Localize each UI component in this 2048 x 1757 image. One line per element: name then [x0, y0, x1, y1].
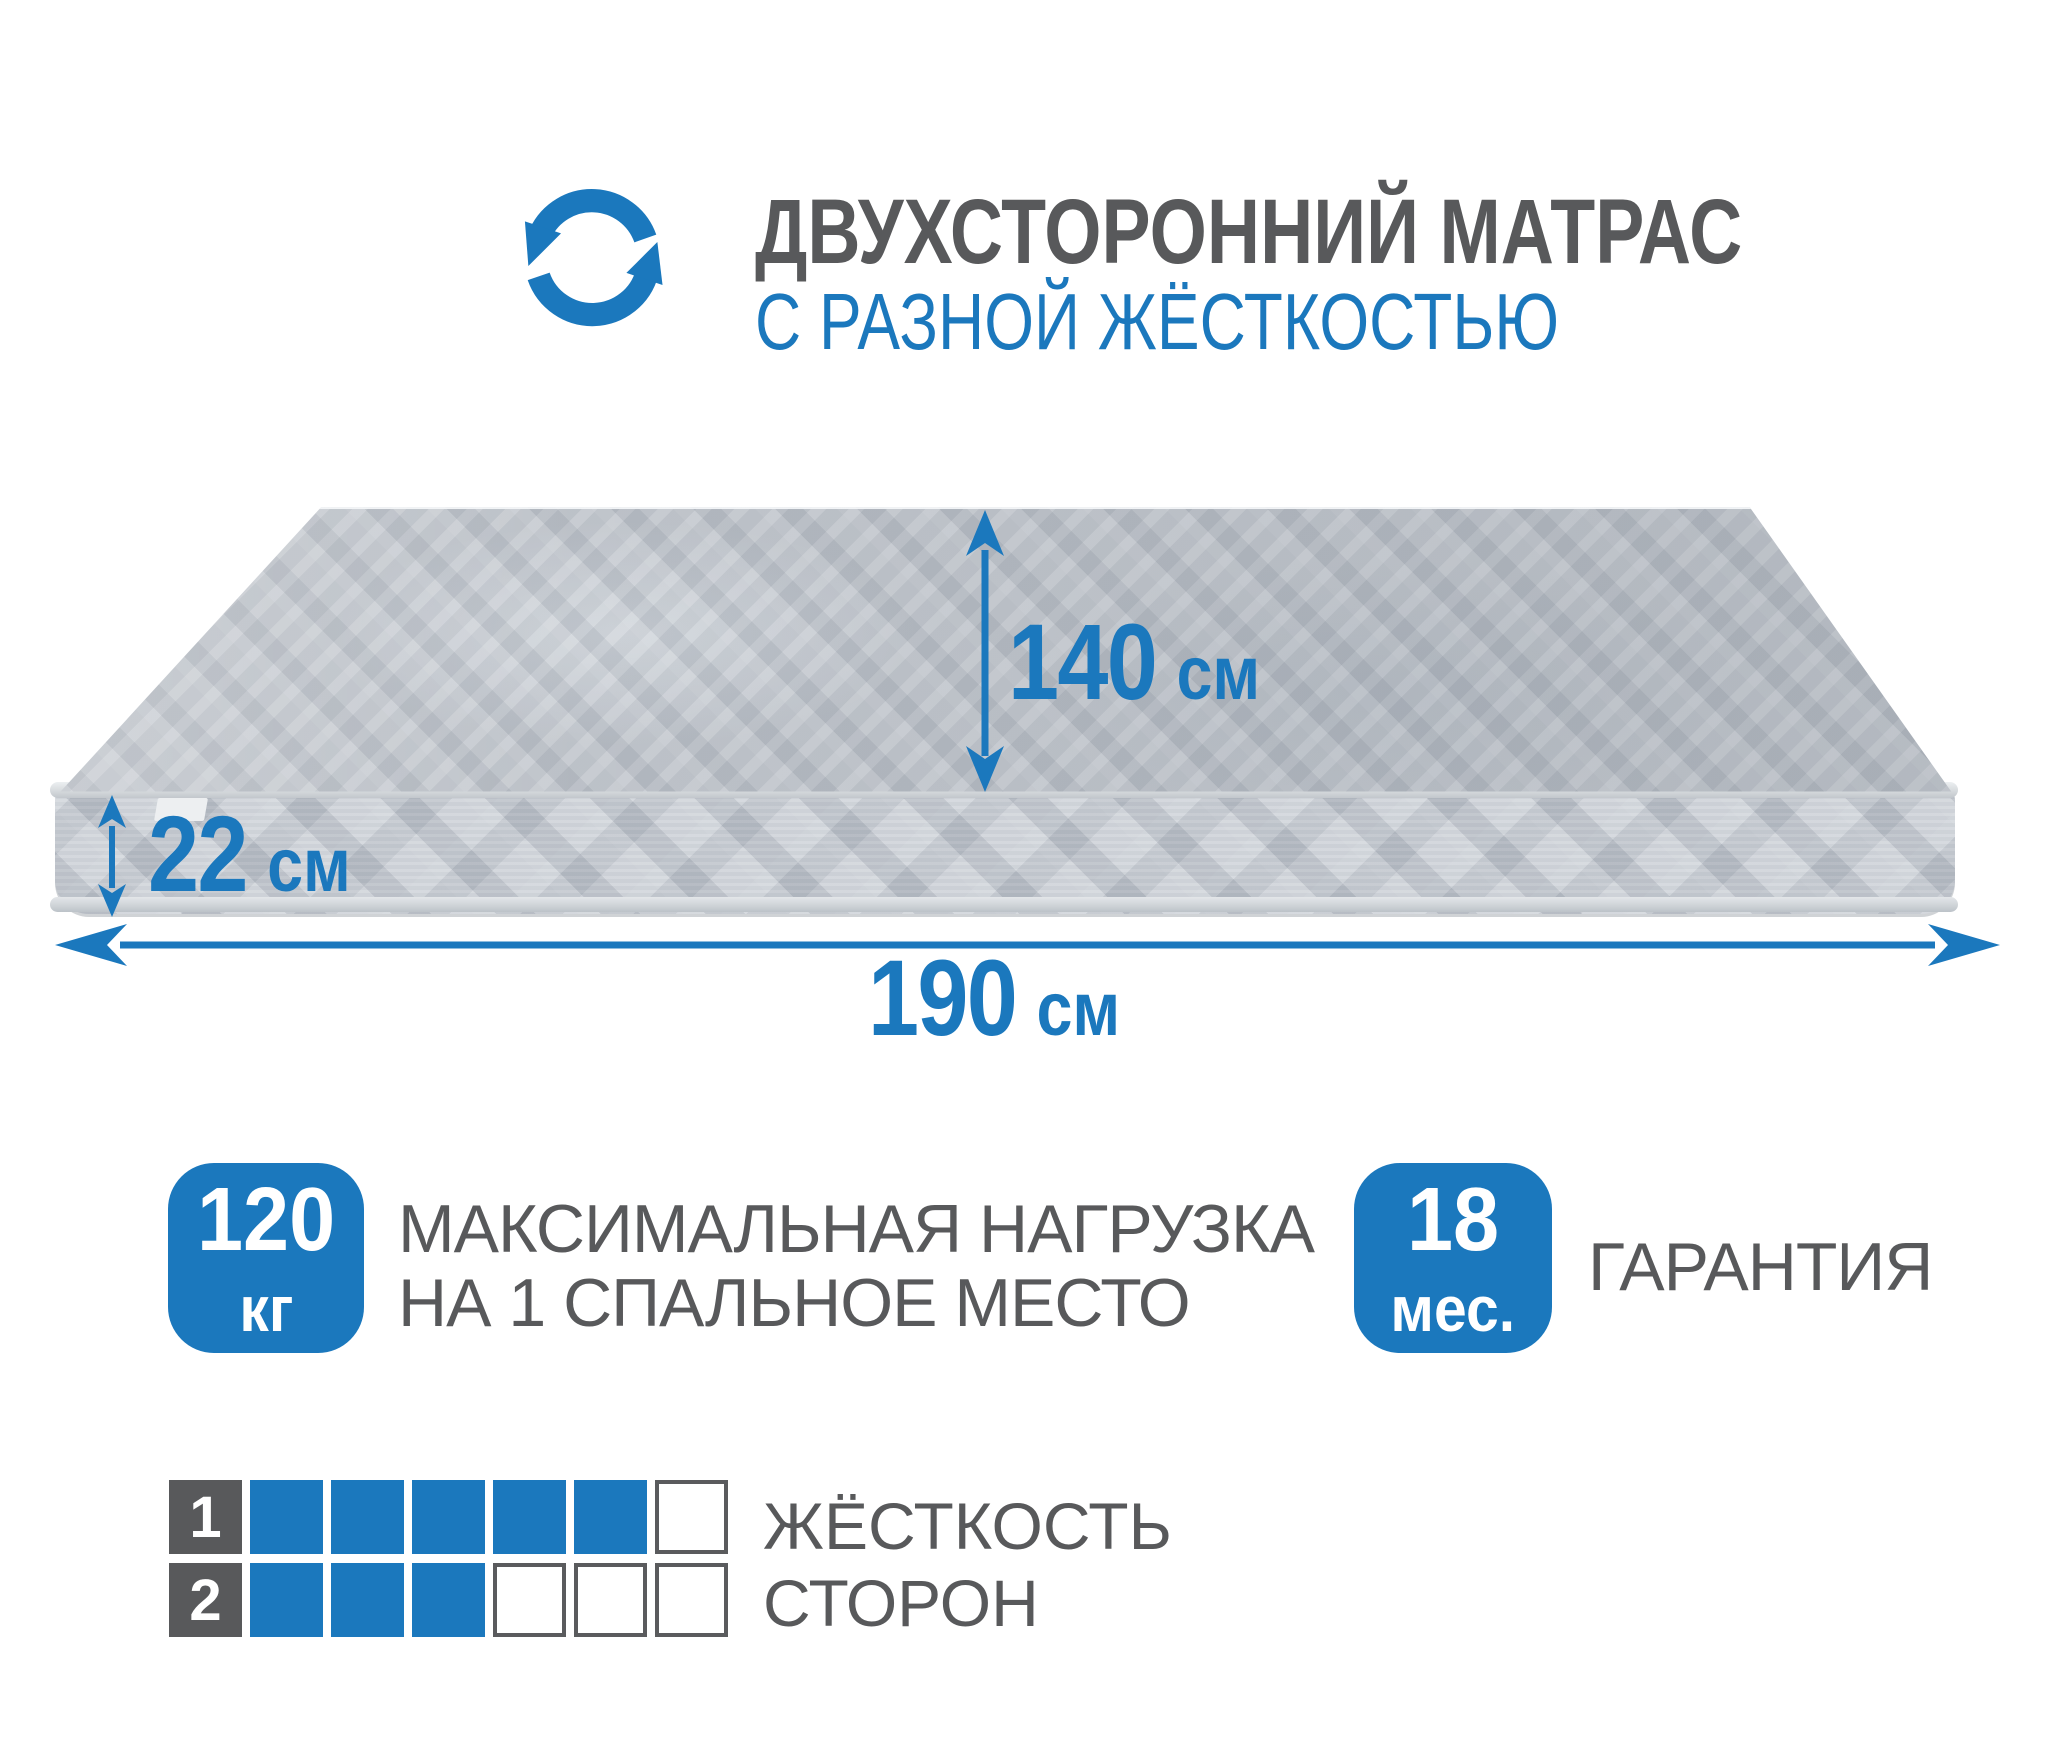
firmness-row-1-cells	[250, 1480, 728, 1554]
firmness-cell-filled	[331, 1563, 404, 1637]
max-load-value: 120	[197, 1175, 335, 1265]
firmness-row-2: 2	[169, 1563, 728, 1637]
length-dimension-label: 190 см	[868, 944, 1120, 1052]
firmness-cell-filled	[493, 1480, 566, 1554]
firmness-cell-filled	[574, 1480, 647, 1554]
firmness-scale: 1 2	[169, 1480, 728, 1646]
firmness-cell-filled	[250, 1563, 323, 1637]
mattress-top-face	[55, 503, 1955, 793]
width-value: 140	[1008, 608, 1156, 716]
firmness-caption-line2: СТОРОН	[763, 1570, 1039, 1636]
length-unit: см	[1036, 972, 1120, 1048]
warranty-unit: мес.	[1391, 1277, 1516, 1341]
width-dimension-label: 140 см	[1008, 608, 1260, 716]
firmness-cell-empty	[574, 1563, 647, 1637]
thickness-dimension-label: 22 см	[148, 800, 351, 908]
warranty-value: 18	[1407, 1175, 1499, 1265]
firmness-cell-empty	[493, 1563, 566, 1637]
firmness-row-2-number: 2	[169, 1563, 242, 1637]
thickness-unit: см	[267, 828, 351, 904]
firmness-cell-filled	[331, 1480, 404, 1554]
firmness-row-1: 1	[169, 1480, 728, 1554]
firmness-cell-filled	[250, 1480, 323, 1554]
firmness-caption-line1: ЖЁСТКОСТЬ	[763, 1493, 1172, 1559]
max-load-caption-line1: МАКСИМАЛЬНАЯ НАГРУЗКА	[398, 1192, 1314, 1266]
firmness-row-1-number: 1	[169, 1480, 242, 1554]
page-title: ДВУХСТОРОННИЙ МАТРАС	[755, 186, 1742, 278]
max-load-badge: 120 кг	[168, 1163, 364, 1353]
rotate-flip-icon	[506, 168, 678, 340]
max-load-caption: МАКСИМАЛЬНАЯ НАГРУЗКА НА 1 СПАЛЬНОЕ МЕСТ…	[398, 1192, 1314, 1340]
page-subtitle: С РАЗНОЙ ЖЁСТКОСТЬЮ	[755, 282, 1559, 362]
mattress-infographic: ДВУХСТОРОННИЙ МАТРАС С РАЗНОЙ ЖЁСТКОСТЬЮ…	[0, 0, 2048, 1757]
firmness-cell-filled	[412, 1480, 485, 1554]
firmness-cell-empty	[655, 1480, 728, 1554]
width-unit: см	[1176, 636, 1260, 712]
warranty-badge: 18 мес.	[1354, 1163, 1552, 1353]
max-load-unit: кг	[239, 1277, 293, 1341]
warranty-caption: ГАРАНТИЯ	[1588, 1230, 1932, 1304]
max-load-caption-line2: НА 1 СПАЛЬНОЕ МЕСТО	[398, 1266, 1314, 1340]
firmness-cell-filled	[412, 1563, 485, 1637]
thickness-value: 22	[148, 800, 247, 908]
length-value: 190	[868, 944, 1016, 1052]
firmness-cell-empty	[655, 1563, 728, 1637]
firmness-row-2-cells	[250, 1563, 728, 1637]
